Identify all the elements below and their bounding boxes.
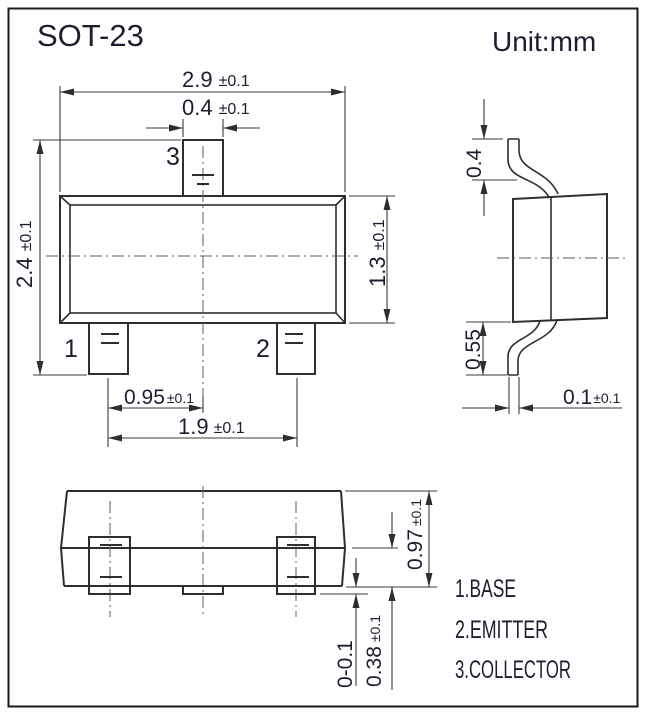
dim-pin3-width: 0.4±0.1 bbox=[146, 95, 260, 137]
legend-item-base: 1.BASE bbox=[455, 575, 516, 603]
page-title: SOT-23 bbox=[37, 18, 144, 53]
dim-text: 0.4±0.1 bbox=[182, 95, 250, 120]
arrowhead-up bbox=[389, 587, 396, 601]
dim-overall-height: 2.4±0.1 bbox=[12, 140, 181, 375]
dim-text: 0.1±0.1 bbox=[563, 386, 621, 409]
dim-text: 0.97±0.1 bbox=[404, 499, 427, 570]
pin2-outline bbox=[277, 323, 315, 374]
pin2-number: 2 bbox=[256, 335, 270, 363]
dim-text: 0.38±0.1 bbox=[363, 615, 386, 687]
dim-text: 1.9±0.1 bbox=[178, 414, 245, 439]
page-border bbox=[9, 9, 638, 707]
bottom-body bbox=[61, 486, 345, 617]
pin-legend: 1.BASE 2.EMITTER 3.COLLECTOR bbox=[455, 575, 571, 684]
arrowhead-up bbox=[426, 491, 433, 505]
arrowhead-right bbox=[283, 435, 297, 442]
pin-2: 2 bbox=[256, 323, 315, 374]
legend-item-emitter: 2.EMITTER bbox=[455, 616, 548, 644]
arrowhead-down bbox=[353, 573, 360, 587]
pin1-marks bbox=[101, 334, 119, 343]
arrowhead-down bbox=[384, 309, 391, 323]
arrowhead-up bbox=[384, 196, 391, 210]
dim-lines bbox=[146, 119, 260, 137]
dim-lead-thickness: 0.1±0.1 bbox=[462, 377, 622, 414]
arrowhead-left bbox=[60, 89, 74, 96]
pin2-marks bbox=[285, 334, 303, 343]
bottom-view: 0.97±0.1 0.38±0.1 0-0.1 bbox=[61, 486, 437, 690]
dim-lower-lead-height: 0.55 bbox=[462, 322, 511, 375]
arrowhead-up bbox=[353, 594, 360, 608]
lower-lead-outline bbox=[508, 320, 557, 375]
legend-item-collector: 3.COLLECTOR bbox=[455, 656, 571, 684]
pin-marks bbox=[100, 545, 122, 577]
arrowhead-left bbox=[108, 405, 122, 412]
dim-lines bbox=[33, 140, 181, 375]
arrowhead-right bbox=[331, 89, 345, 96]
arrowhead-down bbox=[481, 125, 488, 139]
arrowhead-right bbox=[169, 125, 183, 132]
arrowhead-down bbox=[426, 573, 433, 587]
pin3-number: 3 bbox=[166, 143, 180, 171]
pin-3: 3 bbox=[166, 140, 223, 196]
arrowhead-right bbox=[495, 405, 509, 412]
dim-upper-lead-height: 0.4 bbox=[463, 99, 517, 216]
side-view: 0.4 0.55 0.1±0.1 bbox=[462, 99, 628, 414]
dim-text: 0.95±0.1 bbox=[124, 386, 194, 409]
drawing-page: SOT-23 Unit:mm 3 1 2 bbox=[0, 0, 645, 715]
dim-text: 2.9±0.1 bbox=[182, 67, 250, 92]
dim-lead-length: 0.38±0.1 bbox=[352, 512, 398, 690]
arrowhead-left bbox=[519, 405, 533, 412]
dim-text: 0.4 bbox=[463, 148, 486, 178]
dim-text: 1.3±0.1 bbox=[365, 219, 390, 287]
package-body bbox=[46, 146, 358, 413]
dim-text: 0.55 bbox=[462, 329, 485, 370]
pin1-outline bbox=[89, 323, 128, 374]
arrowhead-left bbox=[223, 125, 237, 132]
side-body bbox=[497, 194, 628, 322]
arrowhead-left bbox=[108, 435, 122, 442]
pin-1: 1 bbox=[64, 323, 128, 374]
arrowhead-up bbox=[481, 180, 488, 194]
upper-lead bbox=[508, 139, 558, 197]
unit-label: Unit:mm bbox=[492, 26, 596, 57]
arrowhead-down bbox=[37, 361, 44, 375]
arrowhead-down bbox=[389, 534, 396, 548]
dim-standoff: 0-0.1 bbox=[320, 558, 368, 688]
pin1-number: 1 bbox=[64, 335, 78, 363]
dim-text: 2.4±0.1 bbox=[12, 220, 37, 288]
dim-text: 0-0.1 bbox=[334, 640, 357, 688]
dim-body-height: 1.3±0.1 bbox=[349, 196, 395, 323]
lower-lead bbox=[508, 320, 557, 375]
upper-lead-outline bbox=[508, 139, 558, 197]
front-view: 3 1 2 2.9±0.1 0.4±0.1 2. bbox=[12, 67, 395, 447]
arrowhead-up bbox=[37, 140, 44, 154]
pin-marks bbox=[287, 545, 309, 577]
